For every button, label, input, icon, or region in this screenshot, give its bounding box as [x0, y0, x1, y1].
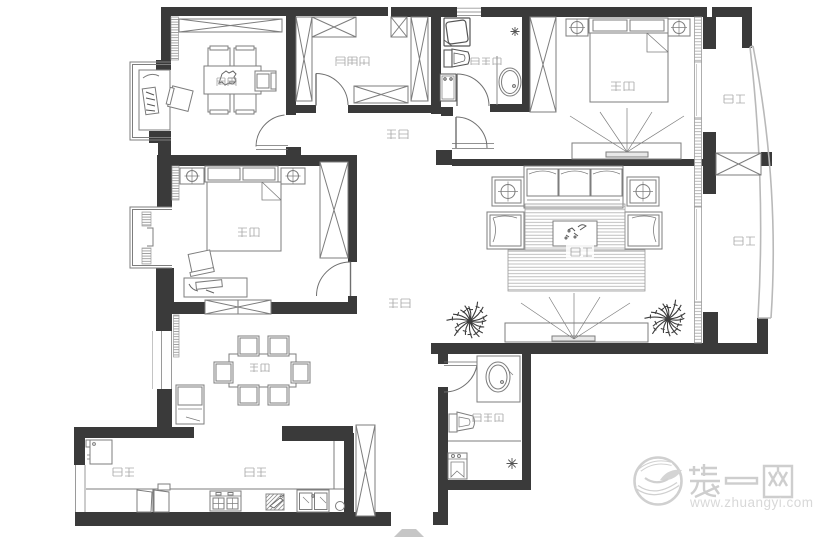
svg-text:www.zhuangyi.com: www.zhuangyi.com	[689, 495, 814, 510]
